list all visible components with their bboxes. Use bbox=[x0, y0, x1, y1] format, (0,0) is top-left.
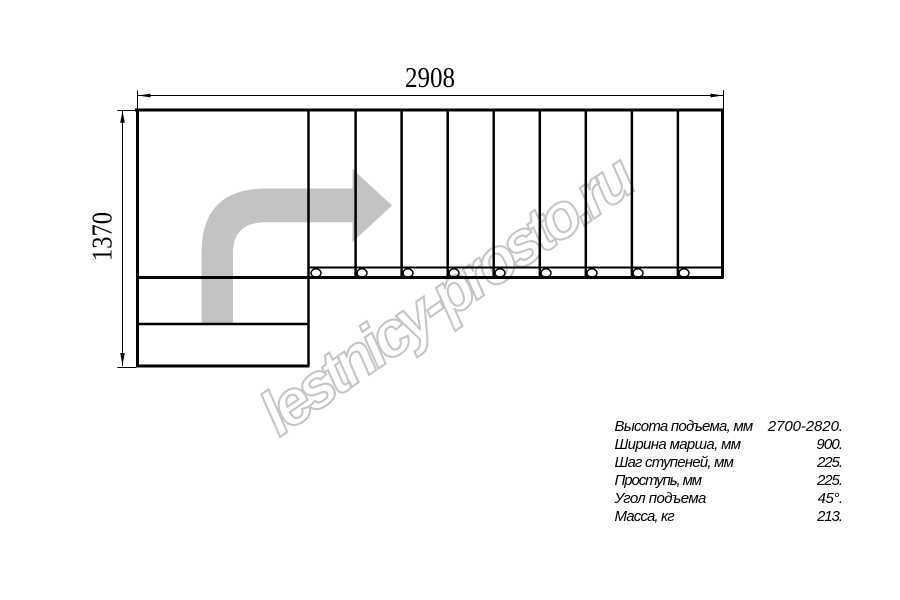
svg-text:1370: 1370 bbox=[87, 212, 119, 261]
svg-text:2908: 2908 bbox=[405, 62, 455, 94]
svg-text:Масса, кг: Масса, кг bbox=[615, 508, 676, 525]
svg-text:45°.: 45°. bbox=[818, 490, 843, 507]
svg-text:2700-2820.: 2700-2820. bbox=[767, 418, 843, 435]
svg-text:Проступь, мм: Проступь, мм bbox=[615, 472, 703, 489]
svg-text:Шаг ступеней, мм: Шаг ступеней, мм bbox=[615, 454, 734, 471]
svg-text:213.: 213. bbox=[816, 508, 843, 525]
svg-text:Высота подъема, мм: Высота подъема, мм bbox=[615, 418, 754, 435]
svg-text:225.: 225. bbox=[816, 472, 843, 489]
svg-text:900.: 900. bbox=[816, 436, 843, 453]
svg-text:Ширина марша, мм: Ширина марша, мм bbox=[615, 436, 742, 453]
svg-text:Угол подъема: Угол подъема bbox=[614, 490, 707, 507]
svg-text:225.: 225. bbox=[816, 454, 843, 471]
